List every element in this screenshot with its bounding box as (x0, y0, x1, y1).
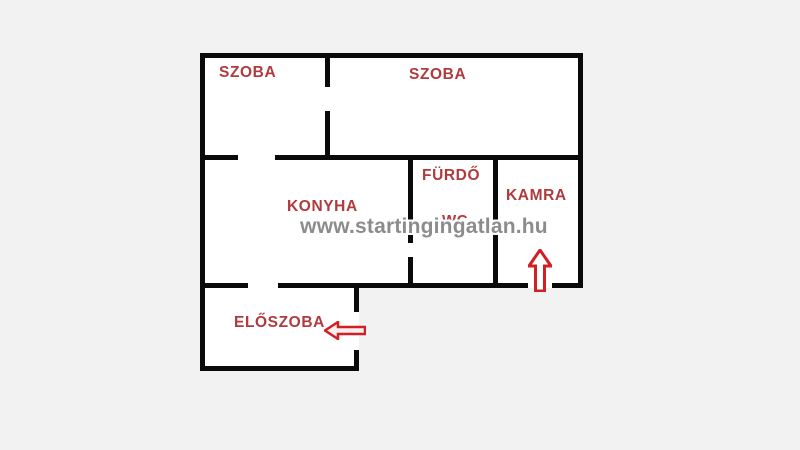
wall-eloszoba-right-upper (354, 283, 359, 312)
room-label-konyha: KONYHA (287, 198, 358, 216)
wall-bottom-left-segment (200, 283, 248, 288)
wall-eloszoba-bottom (200, 366, 359, 371)
room-label-eloszoba: ELŐSZOBA (234, 314, 325, 332)
wall-mid-right-segment (275, 155, 583, 160)
wall-bottom-middle-segment (278, 283, 528, 288)
floor-main-block (200, 53, 583, 288)
watermark-text: www.startingingatlan.hu (300, 215, 548, 239)
wall-outer-top (200, 53, 583, 58)
room-label-kamra: KAMRA (506, 187, 567, 205)
entrance-arrow-up-icon (528, 249, 552, 292)
wall-szoba-divider-lower (325, 111, 330, 160)
wall-mid-left-segment (200, 155, 238, 160)
room-label-furdo: FÜRDŐ (422, 167, 480, 185)
wall-outer-right (578, 53, 583, 288)
floorplan-canvas: SZOBA SZOBA KONYHA FÜRDŐ WC KAMRA ELŐSZO… (0, 0, 800, 450)
wall-outer-left (200, 53, 205, 371)
wall-bottom-right-segment (552, 283, 583, 288)
room-label-szoba-right: SZOBA (409, 66, 466, 84)
room-label-szoba-left: SZOBA (219, 64, 276, 82)
entrance-arrow-left-icon (324, 321, 366, 340)
wall-szoba-divider-upper (325, 53, 330, 87)
